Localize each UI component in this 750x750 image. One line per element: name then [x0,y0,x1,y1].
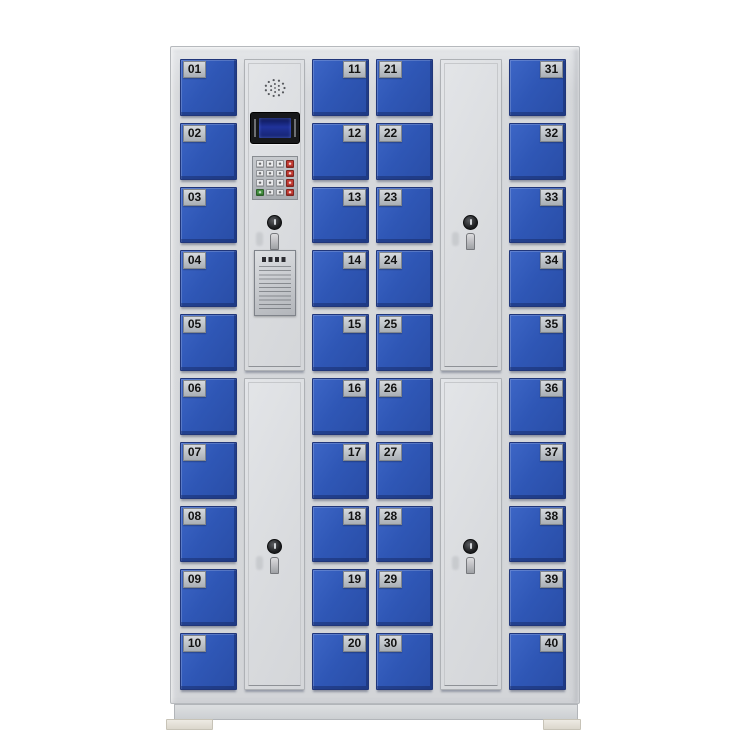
door-number-label: 22 [379,125,402,142]
locker-door-17[interactable]: 17 [312,442,369,499]
locker-door-15[interactable]: 15 [312,314,369,371]
cabinet-foot-left [166,719,213,730]
door-number-label: 06 [183,380,206,397]
door-number-label: 15 [343,316,366,333]
locker-door-08[interactable]: 08 [180,506,237,563]
door-number-label: 23 [379,189,402,206]
locker-door-28[interactable]: 28 [376,506,433,563]
control-panel [244,59,306,371]
key-lock[interactable] [264,215,286,250]
locker-door-12[interactable]: 12 [312,123,369,180]
locker-door-09[interactable]: 09 [180,569,237,626]
keypad-key-r2c3[interactable] [276,170,284,178]
door-number-label: 18 [343,508,366,525]
key-icon[interactable] [270,233,279,250]
door-number-label: 24 [379,252,402,269]
door-number-label: 26 [379,380,402,397]
key-shadow [452,556,459,570]
locker-grid: 0102030405060708091011121314151617181920… [180,59,566,690]
door-number-label: 09 [183,571,206,588]
keypad-key-r3c4[interactable] [286,179,294,187]
locker-door-02[interactable]: 02 [180,123,237,180]
lock-cylinder-icon[interactable] [463,539,478,554]
door-number-label: 29 [379,571,402,588]
cabinet-col-1: 01020304050607080910 [180,59,237,690]
door-number-label: 28 [379,508,402,525]
locker-door-23[interactable]: 23 [376,187,433,244]
cabinet-foot-right [543,719,581,730]
cabinet-col-4: 21222324252627282930 [376,59,433,690]
locker-door-21[interactable]: 21 [376,59,433,116]
key-icon[interactable] [466,557,475,574]
product-photo-stage: 0102030405060708091011121314151617181920… [0,0,750,750]
locker-door-11[interactable]: 11 [312,59,369,116]
door-number-label: 07 [183,444,206,461]
locker-door-40[interactable]: 40 [509,633,566,690]
locker-door-32[interactable]: 32 [509,123,566,180]
door-number-label: 32 [540,125,563,142]
door-number-label: 35 [540,316,563,333]
tall-locker-door-1[interactable] [440,59,503,371]
key-lock[interactable] [460,539,482,574]
instruction-plate-text [259,266,291,312]
locker-door-31[interactable]: 31 [509,59,566,116]
door-number-label: 20 [343,635,366,652]
key-lock[interactable] [264,539,286,574]
key-shadow [452,232,459,246]
locker-door-05[interactable]: 05 [180,314,237,371]
door-number-label: 40 [540,635,563,652]
instruction-plate [254,250,296,316]
locker-door-37[interactable]: 37 [509,442,566,499]
locker-door-22[interactable]: 22 [376,123,433,180]
locker-door-26[interactable]: 26 [376,378,433,435]
locker-door-01[interactable]: 01 [180,59,237,116]
cabinet-col-5 [440,59,503,690]
door-number-label: 38 [540,508,563,525]
keypad-key-r2c2[interactable] [266,170,274,178]
key-shadow [256,556,263,570]
locker-door-19[interactable]: 19 [312,569,369,626]
door-number-label: 21 [379,61,402,78]
keypad-key-r3c1[interactable] [256,179,264,187]
door-number-label: 04 [183,252,206,269]
key-icon[interactable] [466,233,475,250]
locker-door-20[interactable]: 20 [312,633,369,690]
door-number-label: 01 [183,61,206,78]
locker-door-25[interactable]: 25 [376,314,433,371]
lcd-display [250,112,300,144]
door-number-label: 27 [379,444,402,461]
keypad-key-r2c1[interactable] [256,170,264,178]
keypad-key-r3c2[interactable] [266,179,274,187]
keypad-key-r1c4[interactable] [286,160,294,168]
door-number-label: 16 [343,380,366,397]
key-icon[interactable] [270,557,279,574]
door-number-label: 11 [343,61,366,78]
door-number-label: 02 [183,125,206,142]
locker-door-13[interactable]: 13 [312,187,369,244]
keypad-key-r1c1[interactable] [256,160,264,168]
locker-door-04[interactable]: 04 [180,250,237,307]
door-number-label: 14 [343,252,366,269]
door-number-label: 25 [379,316,402,333]
lcd-clamp [294,119,296,137]
cabinet-col-3: 11121314151617181920 [312,59,369,690]
locker-door-38[interactable]: 38 [509,506,566,563]
locker-door-33[interactable]: 33 [509,187,566,244]
door-number-label: 39 [540,571,563,588]
locker-door-06[interactable]: 06 [180,378,237,435]
locker-cabinet: 0102030405060708091011121314151617181920… [170,46,580,704]
keypad [252,156,298,200]
door-number-label: 08 [183,508,206,525]
speaker-grille-icon [257,73,293,103]
door-number-label: 34 [540,252,563,269]
locker-door-18[interactable]: 18 [312,506,369,563]
cabinet-col-2 [244,59,306,690]
keypad-key-r4c4[interactable] [286,189,294,197]
locker-door-07[interactable]: 07 [180,442,237,499]
keypad-key-r4c1[interactable] [256,189,264,197]
lock-cylinder-icon[interactable] [463,215,478,230]
door-number-label: 12 [343,125,366,142]
locker-door-39[interactable]: 39 [509,569,566,626]
key-shadow [256,232,263,246]
keypad-key-r3c3[interactable] [276,179,284,187]
door-number-label: 10 [183,635,206,652]
keypad-key-r1c2[interactable] [266,160,274,168]
locker-door-03[interactable]: 03 [180,187,237,244]
keypad-key-r4c3[interactable] [276,189,284,197]
locker-door-16[interactable]: 16 [312,378,369,435]
lock-cylinder-icon[interactable] [267,215,282,230]
instruction-plate-title [262,257,288,262]
locker-door-14[interactable]: 14 [312,250,369,307]
locker-door-36[interactable]: 36 [509,378,566,435]
door-number-label: 13 [343,189,366,206]
door-number-label: 17 [343,444,366,461]
door-number-label: 05 [183,316,206,333]
door-number-label: 30 [379,635,402,652]
door-number-label: 36 [540,380,563,397]
door-number-label: 31 [540,61,563,78]
cabinet-col-6: 31323334353637383940 [509,59,566,690]
door-number-label: 37 [540,444,563,461]
lcd-screen [259,118,291,138]
lock-cylinder-icon[interactable] [267,539,282,554]
door-number-label: 33 [540,189,563,206]
locker-door-27[interactable]: 27 [376,442,433,499]
keypad-key-r1c3[interactable] [276,160,284,168]
locker-door-29[interactable]: 29 [376,569,433,626]
locker-door-24[interactable]: 24 [376,250,433,307]
door-number-label: 19 [343,571,366,588]
door-number-label: 03 [183,189,206,206]
locker-door-34[interactable]: 34 [509,250,566,307]
locker-door-10[interactable]: 10 [180,633,237,690]
keypad-key-r4c2[interactable] [266,189,274,197]
locker-door-30[interactable]: 30 [376,633,433,690]
key-lock[interactable] [460,215,482,250]
lcd-clamp [254,119,256,137]
keypad-key-r2c4[interactable] [286,170,294,178]
locker-door-35[interactable]: 35 [509,314,566,371]
cabinet-plinth [174,704,578,720]
tall-locker-door-2[interactable] [440,378,503,690]
control-column-lower-door[interactable] [244,378,306,690]
